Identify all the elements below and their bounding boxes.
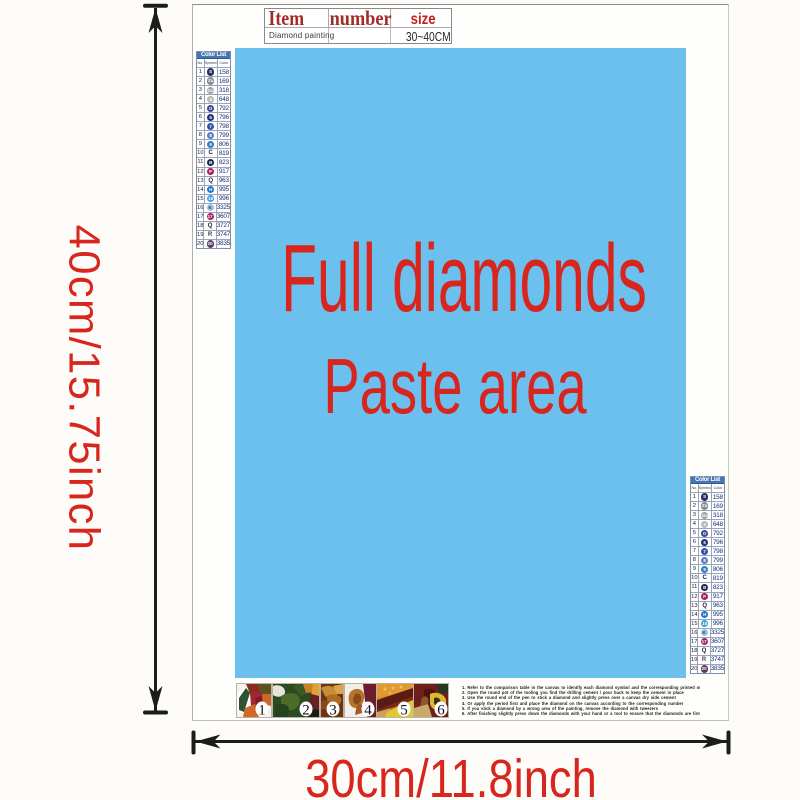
svg-text:6: 6 [437,703,445,718]
svg-text:3: 3 [329,703,337,718]
svg-text:4: 4 [364,703,372,718]
svg-text:2: 2 [302,703,310,718]
svg-text:1: 1 [258,703,266,718]
svg-text:5: 5 [400,703,408,718]
